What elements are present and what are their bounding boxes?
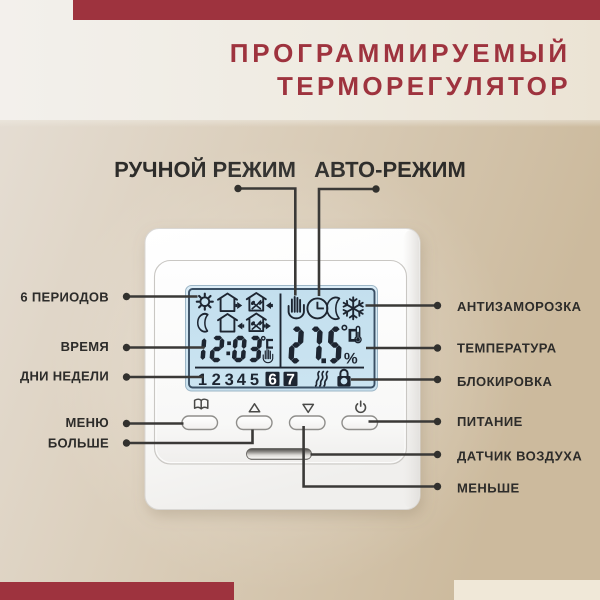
svg-text:ПИТАНИЕ: ПИТАНИЕ <box>457 414 523 429</box>
svg-text:БЛОКИРОВКА: БЛОКИРОВКА <box>457 374 553 389</box>
svg-text:6 ПЕРИОДОВ: 6 ПЕРИОДОВ <box>20 290 109 305</box>
svg-text:3: 3 <box>225 371 234 389</box>
svg-text:4: 4 <box>237 371 247 389</box>
svg-text:ДНИ НЕДЕЛИ: ДНИ НЕДЕЛИ <box>20 369 109 384</box>
svg-text:ТЕМПЕРАТУРА: ТЕМПЕРАТУРА <box>457 341 557 356</box>
svg-text:1: 1 <box>198 371 207 389</box>
svg-text:АНТИЗАМОРОЗКА: АНТИЗАМОРОЗКА <box>457 299 582 314</box>
svg-text:%: % <box>344 351 358 368</box>
svg-text:БОЛЬШЕ: БОЛЬШЕ <box>48 436 109 451</box>
svg-text:5: 5 <box>250 371 259 389</box>
svg-text:МЕНЬШЕ: МЕНЬШЕ <box>457 481 520 496</box>
svg-text:ВРЕМЯ: ВРЕМЯ <box>61 339 109 354</box>
svg-text:6: 6 <box>268 371 277 388</box>
svg-text:2: 2 <box>212 371 221 389</box>
svg-text:ДАТЧИК ВОЗДУХА: ДАТЧИК ВОЗДУХА <box>457 449 582 464</box>
svg-text:ТЕРМОРЕГУЛЯТОР: ТЕРМОРЕГУЛЯТОР <box>277 71 571 101</box>
svg-text:ПРОГРАММИРУЕМЫЙ: ПРОГРАММИРУЕМЫЙ <box>230 38 571 68</box>
svg-text:МЕНЮ: МЕНЮ <box>66 415 110 430</box>
svg-text:7: 7 <box>286 371 295 388</box>
